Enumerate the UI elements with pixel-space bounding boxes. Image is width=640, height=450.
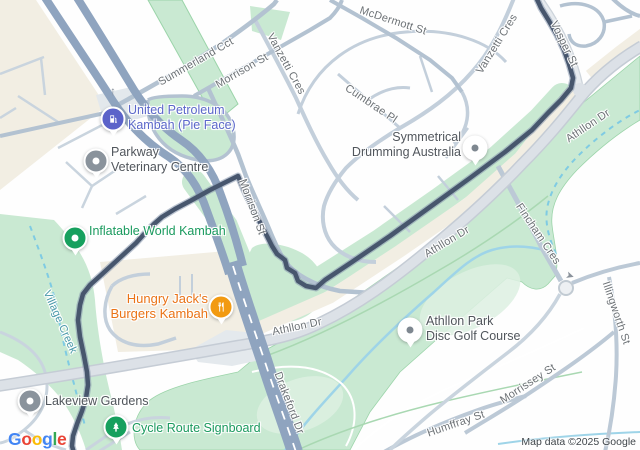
poi-label-line: Burgers Kambah xyxy=(110,306,208,321)
poi-label-cycle-signboard[interactable]: Cycle Route Signboard xyxy=(132,421,261,436)
pin-dot xyxy=(72,235,79,242)
map-attribution: Map data ©2025 Google xyxy=(521,436,636,448)
pin-dot xyxy=(407,327,414,334)
google-logo-letter: o xyxy=(21,429,31,449)
cycle-signboard-pin-icon[interactable] xyxy=(104,415,129,440)
poi-label-line: Drumming Australia xyxy=(352,145,461,160)
poi-label-inflatable-world[interactable]: Inflatable World Kambah xyxy=(89,224,226,239)
poi-label-symmetrical-drumming[interactable]: Symmetrical Drumming Australia xyxy=(352,130,461,160)
google-logo[interactable]: Google xyxy=(8,429,66,450)
fuel-pump-icon xyxy=(108,114,119,125)
google-logo-letter: G xyxy=(8,429,21,449)
poi-label-line: Kambah (Pie Face) xyxy=(128,118,236,133)
poi-label-line: Cycle Route Signboard xyxy=(132,421,261,436)
pin-dot xyxy=(27,398,34,405)
parkway-vet-pin-icon[interactable] xyxy=(84,149,109,174)
poi-label-line: Veterinary Centre xyxy=(111,160,208,175)
poi-label-line: Inflatable World Kambah xyxy=(89,224,226,239)
poi-label-line: Lakeview Gardens xyxy=(45,394,149,409)
poi-label-line: United Petroleum xyxy=(128,103,236,118)
poi-label-disc-golf[interactable]: Athllon Park Disc Golf Course xyxy=(426,314,520,344)
pin-dot xyxy=(93,158,100,165)
map-viewport[interactable]: Summerland Cct Morrison St McDermott St … xyxy=(0,0,640,450)
tree-icon xyxy=(111,422,122,433)
lakeview-gardens-pin-icon[interactable] xyxy=(18,389,43,414)
restaurant-pin-icon[interactable] xyxy=(209,295,234,320)
poi-label-lakeview-gardens[interactable]: Lakeview Gardens xyxy=(45,394,149,409)
poi-label-parkway-vet[interactable]: Parkway Veterinary Centre xyxy=(111,145,208,175)
poi-label-united-petroleum[interactable]: United Petroleum Kambah (Pie Face) xyxy=(128,103,236,133)
google-logo-letter: o xyxy=(32,429,42,449)
google-logo-letter: e xyxy=(57,429,66,449)
google-logo-letter: g xyxy=(42,429,52,449)
roundabout-fincham xyxy=(559,281,573,295)
poi-label-line: Athllon Park xyxy=(426,314,520,329)
one-way-arrow-icon: ↑ xyxy=(110,84,116,98)
disc-golf-pin-icon[interactable] xyxy=(398,318,423,343)
poi-label-line: Symmetrical xyxy=(352,130,461,145)
pin-dot xyxy=(472,145,479,152)
poi-label-line: Disc Golf Course xyxy=(426,329,520,344)
poi-label-line: Parkway xyxy=(111,145,208,160)
symmetrical-drumming-pin-icon[interactable] xyxy=(463,136,488,161)
poi-label-line: Hungry Jack's xyxy=(110,291,208,306)
inflatable-world-pin-icon[interactable] xyxy=(63,226,88,251)
fork-knife-icon xyxy=(216,302,227,313)
fuel-station-pin-icon[interactable] xyxy=(101,107,126,132)
poi-label-hungry-jacks[interactable]: Hungry Jack's Burgers Kambah xyxy=(110,291,208,321)
